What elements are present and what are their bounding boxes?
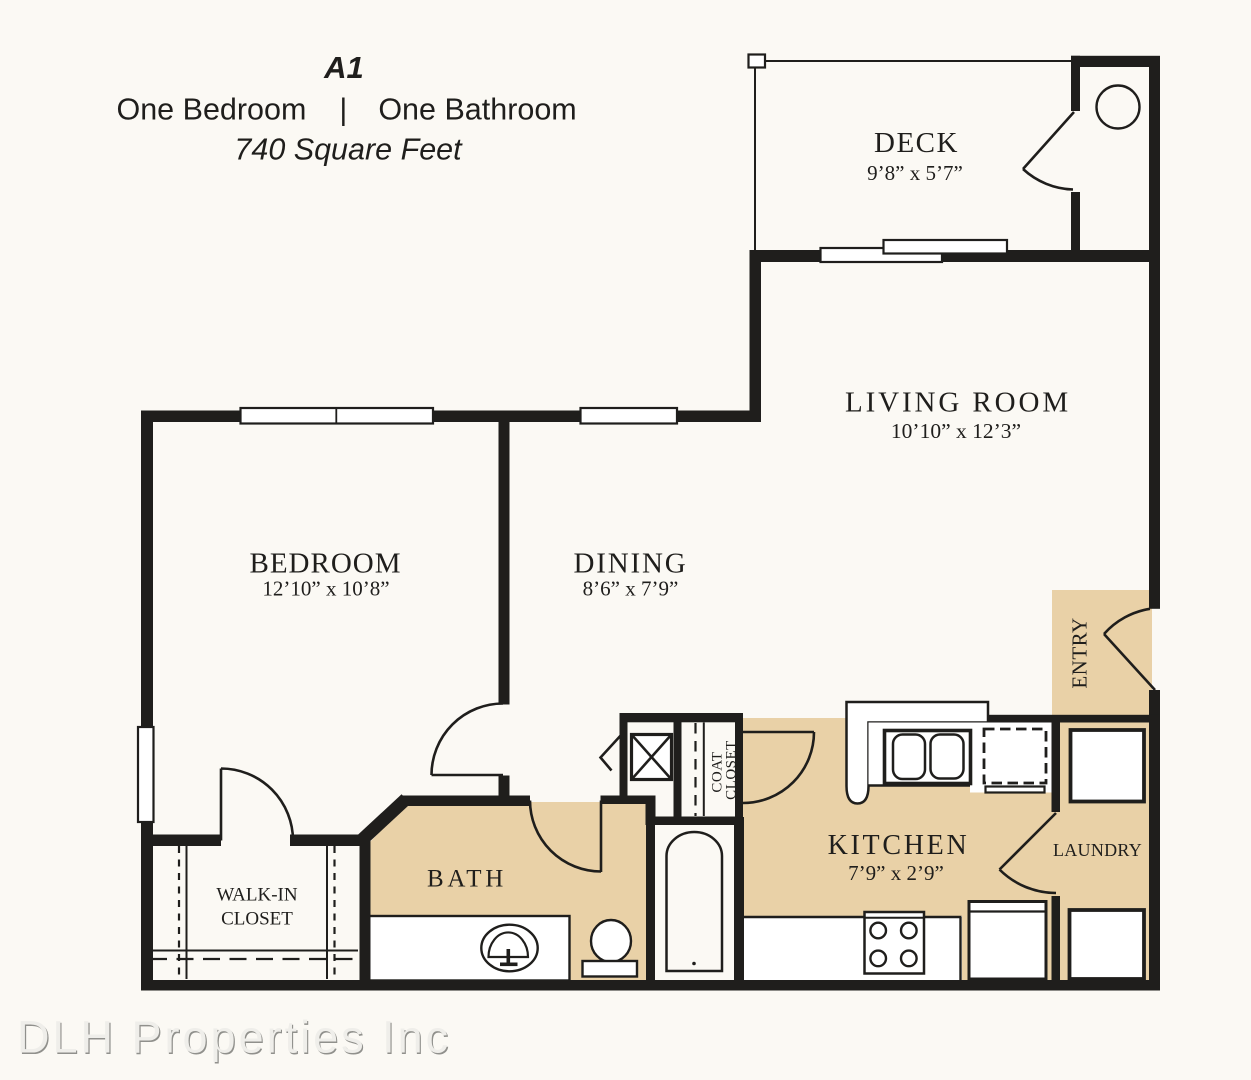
svg-text:CLOSET: CLOSET [221,909,293,930]
svg-text:KITCHEN: KITCHEN [828,830,970,861]
svg-text:DLH Properties Inc: DLH Properties Inc [17,1012,451,1063]
svg-text:DECK: DECK [874,127,959,159]
svg-text:WALK-IN: WALK-IN [216,885,298,906]
svg-text:One Bedroom|One Bathroom: One Bedroom|One Bathroom [117,93,577,127]
svg-text:12’10” x 10’8”: 12’10” x 10’8” [262,577,389,601]
svg-text:8’6” x 7’9”: 8’6” x 7’9” [583,577,679,601]
svg-text:CLOSET: CLOSET [724,740,740,800]
svg-text:DINING: DINING [574,548,688,580]
svg-text:ENTRY: ENTRY [1068,617,1092,688]
svg-text:10’10” x 12’3”: 10’10” x 12’3” [891,419,1021,443]
svg-text:A1: A1 [323,50,364,85]
svg-text:740 Square Feet: 740 Square Feet [234,133,463,167]
svg-text:7’9” x 2’9”: 7’9” x 2’9” [848,861,944,885]
svg-text:LAUNDRY: LAUNDRY [1053,840,1142,860]
svg-text:LIVING ROOM: LIVING ROOM [845,387,1071,419]
svg-text:BATH: BATH [427,866,507,893]
svg-text:BEDROOM: BEDROOM [249,548,401,580]
svg-text:9’8” x 5’7”: 9’8” x 5’7” [867,161,963,185]
